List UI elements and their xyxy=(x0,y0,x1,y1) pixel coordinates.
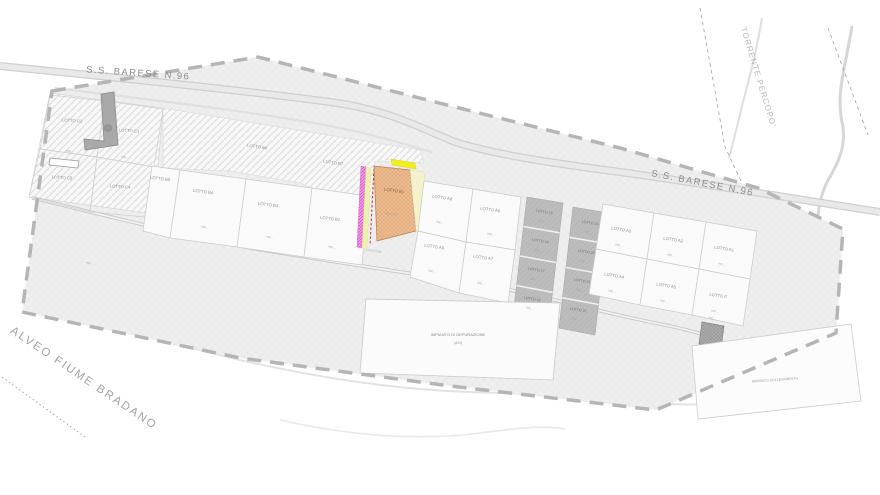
lot-a7 xyxy=(459,242,515,303)
building-tank-circle xyxy=(105,125,112,132)
impianto-depurazione-label-2: (ASI) xyxy=(454,341,462,345)
lot-b3 xyxy=(237,179,312,257)
misc-area-marker: mq ... xyxy=(86,261,94,266)
impianto-depurazione-label-1: IMPIANTO DI DEPURAZIONE xyxy=(431,332,486,337)
site-plan-svg: S.S. BARESE N.96 S.S. BARESE N.96 TORREN… xyxy=(0,0,880,495)
lot-b1-highlighted xyxy=(374,166,416,241)
site-plan-canvas: S.S. BARESE N.96 S.S. BARESE N.96 TORREN… xyxy=(0,0,880,495)
bradano-river-line-2 xyxy=(280,420,565,437)
lot-a6 xyxy=(466,189,521,250)
lot-c4-area: mq ... xyxy=(121,155,129,160)
impianto-depurazione-area xyxy=(360,299,560,380)
bradano-dotted-line xyxy=(2,377,85,437)
lot-c5-area: mq ... xyxy=(66,149,74,154)
alveo-label: ALVEO FIUME BRADANO xyxy=(8,325,159,433)
lot-b4 xyxy=(170,170,246,247)
